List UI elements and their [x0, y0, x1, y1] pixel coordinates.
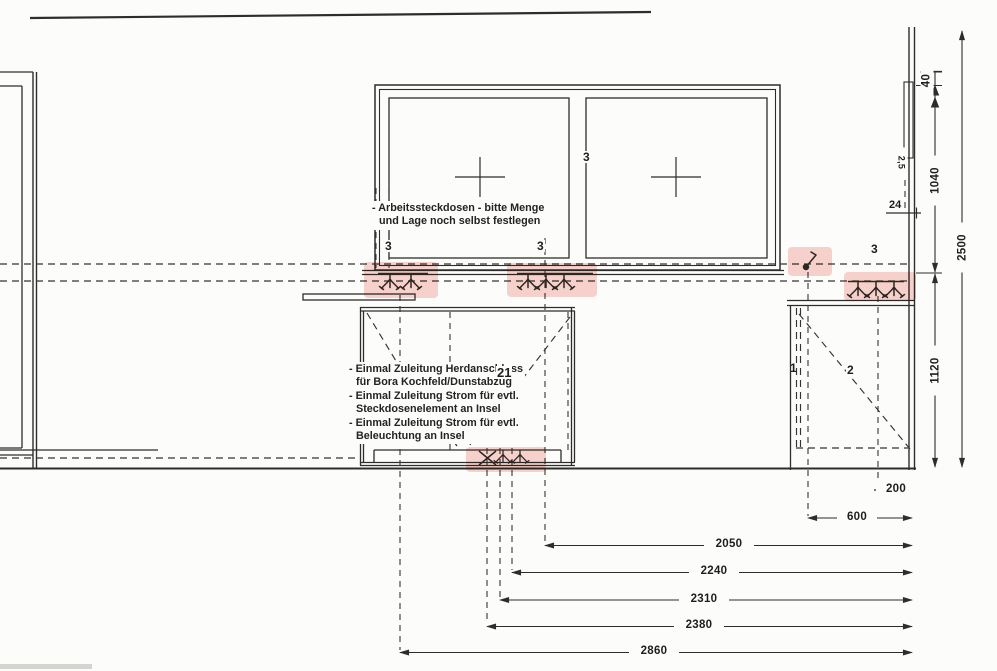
door-swing-right — [799, 314, 910, 449]
note-line: und Lage noch selbst festlegen — [372, 215, 544, 228]
horizontal-dimensions — [400, 485, 916, 653]
note-line: - Arbeitssteckdosen - bitte Menge — [372, 202, 544, 215]
dim-2860: 2860 — [629, 645, 679, 658]
label-window-mullion: 3 — [582, 151, 591, 163]
dim-2310: 2310 — [679, 593, 729, 606]
pane-cross-right — [651, 157, 701, 197]
right-base-cabinet — [787, 301, 915, 471]
label-group-right: 3 — [870, 243, 879, 255]
window-pane-left — [389, 98, 569, 258]
label-niche-24: 24 — [888, 200, 902, 211]
note-line: - Einmal Zuleitung Strom für evtl. — [349, 417, 523, 430]
label-cable-spec: 2,5 — [895, 148, 908, 178]
dim-1120: 1120 — [930, 346, 943, 396]
dim-2240: 2240 — [689, 565, 739, 578]
highlight-socket-left — [364, 262, 438, 298]
dim-2050: 2050 — [704, 538, 754, 551]
dim-600: 600 — [837, 511, 877, 524]
note-line: Steckdosenelement an Insel — [349, 403, 523, 416]
highlight-socket-center — [507, 263, 597, 297]
highlight-socket-right — [844, 272, 916, 301]
dim-2500: 2500 — [957, 223, 970, 273]
dim-200: 200 — [876, 483, 916, 496]
scan-artifact — [0, 664, 92, 669]
dim-1040: 1040 — [930, 156, 943, 206]
highlight-island-connections — [466, 447, 546, 472]
label-group-center: 3 — [536, 240, 545, 252]
vertical-dimensions — [916, 31, 962, 467]
dim-40: 40 — [921, 66, 934, 96]
scanned-kitchen-elevation-drawing: - Arbeitssteckdosen - bitte Menge und La… — [0, 0, 997, 671]
note-line: Beleuchtung an Insel — [349, 430, 523, 443]
drawing-linework — [0, 0, 997, 671]
note-arbeitssteckdosen: - Arbeitssteckdosen - bitte Menge und La… — [370, 201, 546, 230]
dim-2380: 2380 — [674, 619, 724, 632]
label-cabinet-2: 2 — [846, 364, 855, 376]
door-swing-island-left — [367, 313, 399, 366]
highlight-switch — [788, 247, 832, 276]
label-cabinet-1: 1 — [789, 362, 798, 374]
main-window — [362, 85, 784, 275]
label-island-21: 21 — [496, 366, 512, 379]
label-group-left: 3 — [384, 240, 393, 252]
pane-cross-left — [455, 157, 505, 197]
note-line: - Einmal Zuleitung Strom für evtl. — [349, 390, 523, 403]
